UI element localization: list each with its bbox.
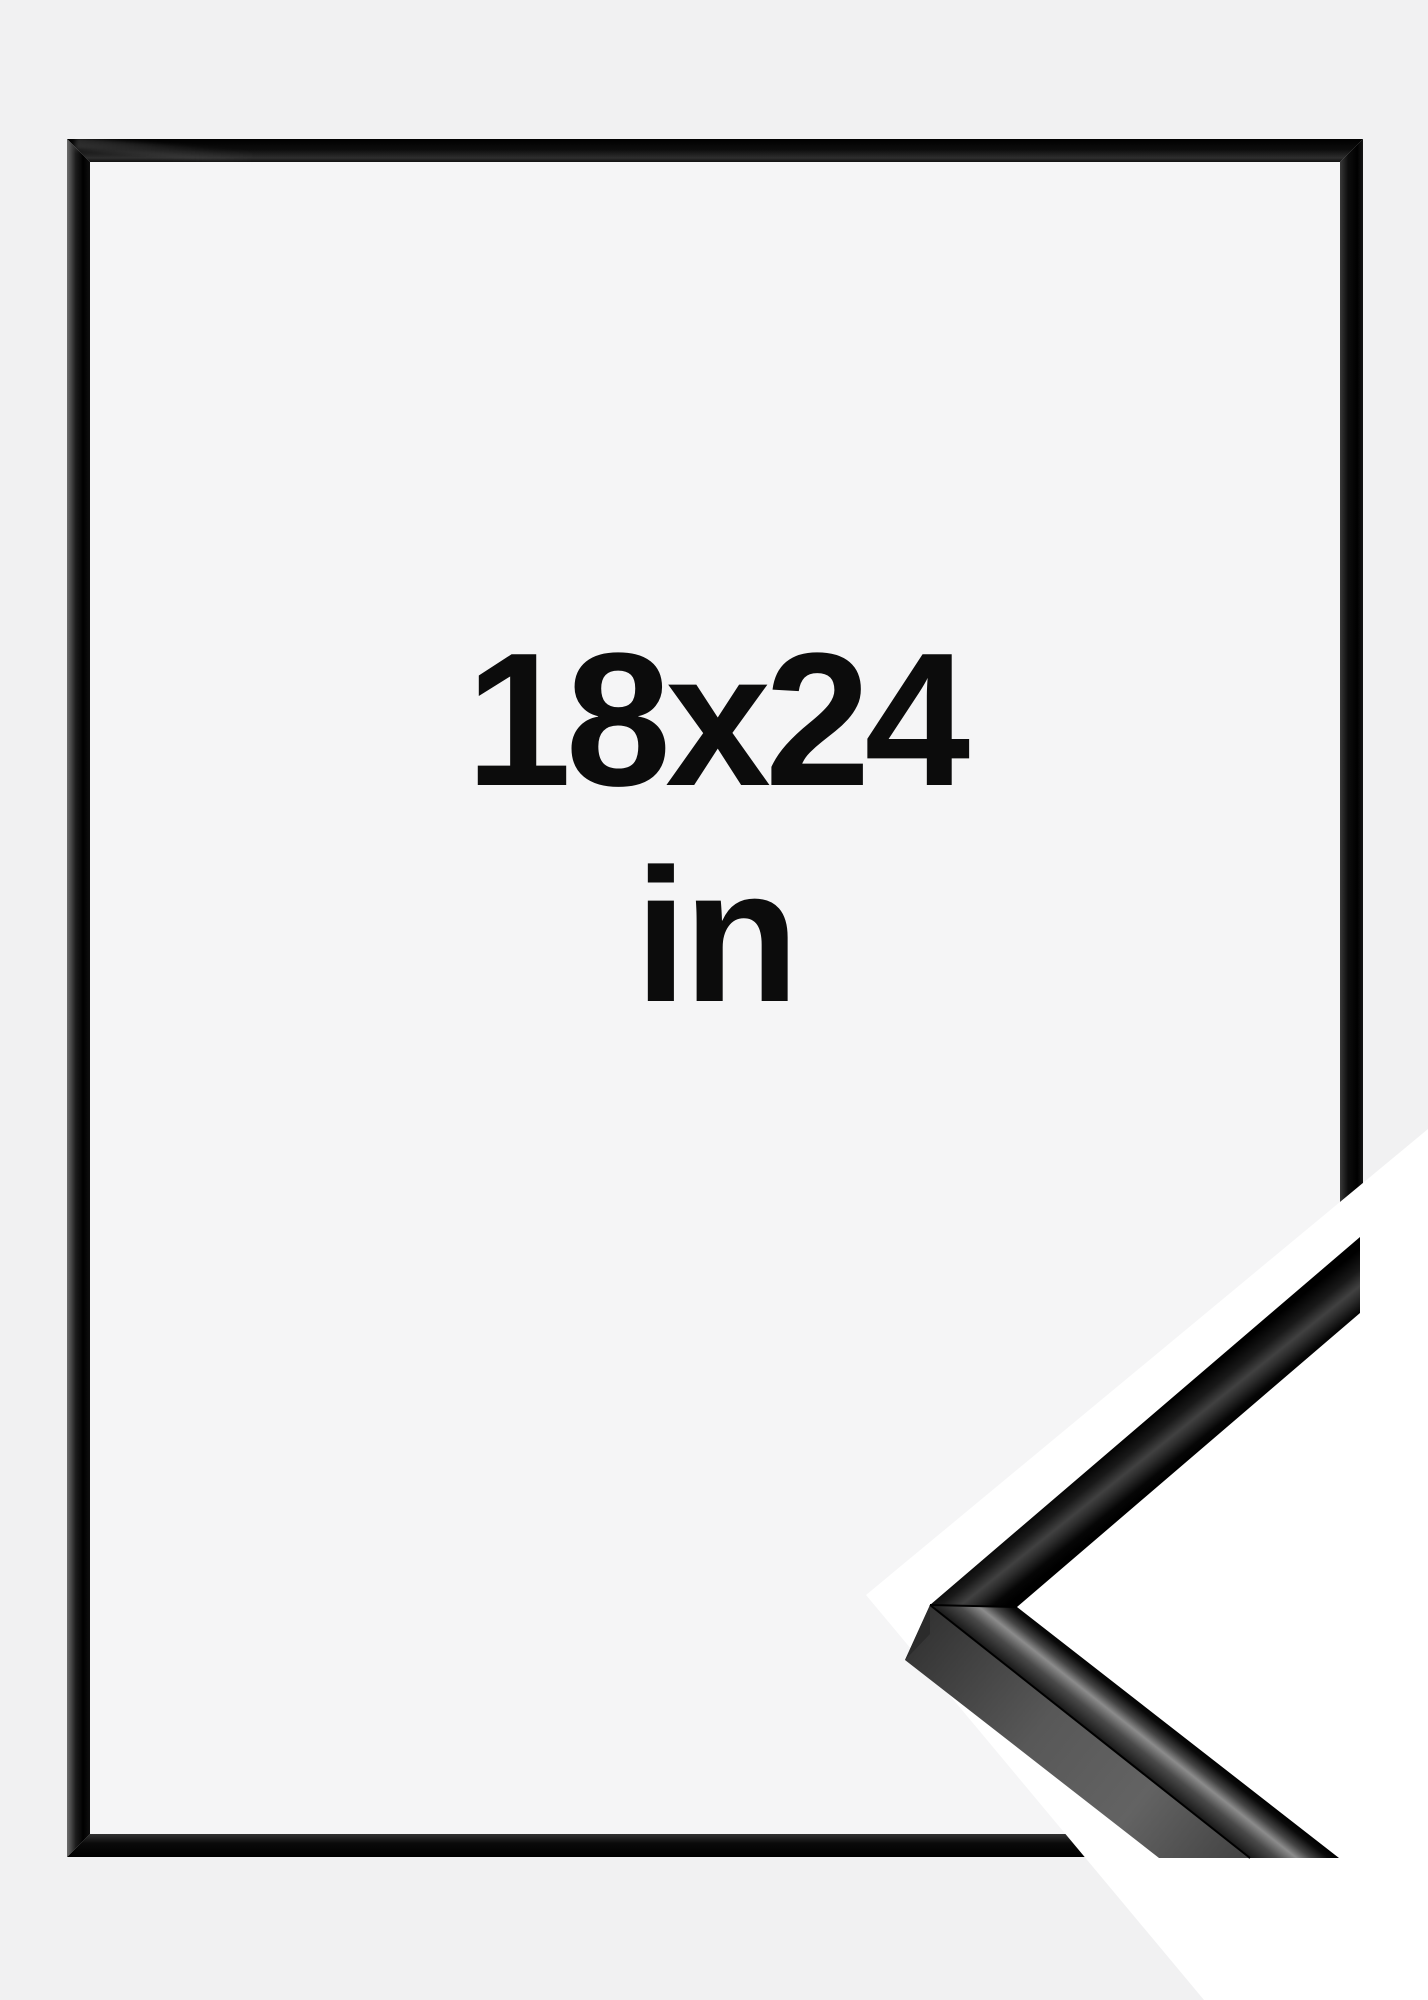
frame-bottom-bar bbox=[67, 1834, 1363, 1857]
size-unit: in bbox=[90, 841, 1340, 1031]
frame-left-bar bbox=[67, 139, 90, 1857]
size-label: 18x24 in bbox=[90, 625, 1340, 1031]
size-value: 18x24 bbox=[90, 625, 1340, 815]
page-background: 18x24 in bbox=[0, 0, 1428, 2000]
frame-right-bar bbox=[1340, 139, 1363, 1857]
picture-frame: 18x24 in bbox=[67, 139, 1363, 1857]
frame-top-bar bbox=[67, 139, 1363, 162]
